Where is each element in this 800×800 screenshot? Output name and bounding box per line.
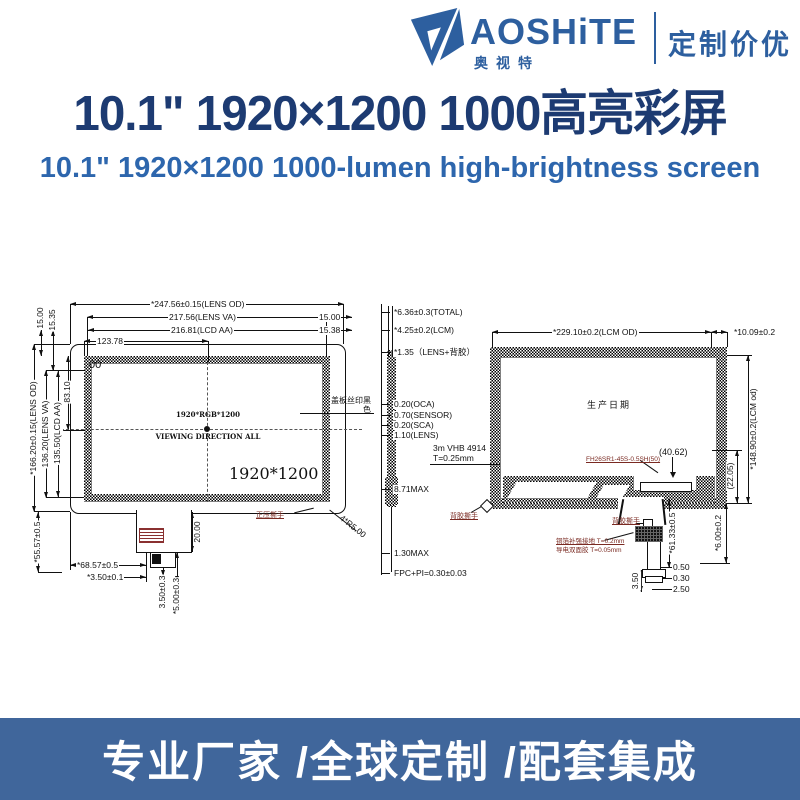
page-title-english: 10.1" 1920×1200 1000-lumen high-brightne… — [0, 152, 800, 185]
tick-line — [381, 435, 390, 436]
dim-fpc-offset: *68.57±0.5 — [76, 561, 119, 571]
fpc-connector-pad — [152, 554, 161, 564]
fpc-sticker — [139, 528, 164, 543]
extension-line — [343, 304, 344, 344]
resolution-label: 1920*1200 — [228, 465, 319, 483]
brand-name: AOSHiTE — [470, 14, 637, 50]
dim-fpc-030: 0.30 — [672, 574, 691, 584]
dimension-line — [711, 332, 727, 333]
dim-lcd-aa-width: 216.81(LCD AA) — [170, 326, 234, 336]
extension-line — [34, 344, 70, 345]
ground-note-line1: 铜箔补强接地 T=0.2mm — [556, 538, 624, 546]
tick-line — [381, 330, 390, 331]
dim-lens-od-width: *247.56±0.15(LENS OD) — [150, 300, 246, 310]
front-tear-tab-note: 正压撕手 — [256, 512, 284, 521]
rear-fpc-gap — [618, 497, 664, 509]
panel-revision-mark: 00 — [88, 359, 102, 372]
tick-line — [381, 415, 390, 416]
rear-fpc-end-tip — [645, 576, 663, 583]
rear-pcb-cutout — [507, 482, 596, 498]
connector-part-number: FH26SR1-45S-0.5SH(50) — [586, 456, 660, 464]
dim-fpc-050: 0.50 — [672, 563, 691, 573]
arrowhead-down — [670, 472, 676, 478]
tick-line — [381, 404, 390, 405]
brand-divider — [654, 12, 656, 64]
dim-total-thickness: *6.36±0.3(TOTAL) — [393, 308, 464, 318]
extension-line — [208, 341, 209, 362]
cover-print-note: 盖板丝印黑色 — [326, 396, 372, 414]
extension-line — [146, 552, 147, 582]
dim-right-margin-1: 15.00 — [318, 313, 341, 323]
dimension-line — [737, 450, 738, 503]
dimension-line — [726, 503, 727, 563]
tick-line — [381, 489, 390, 490]
dim-connector-offset: (40.62) — [658, 447, 689, 457]
brand-tagline: 定制价优 — [668, 23, 792, 63]
rear-tear-tab-note: 背胶撕手 — [612, 518, 640, 527]
board-connector — [640, 482, 692, 492]
extension-line — [326, 317, 327, 356]
page-title-chinese: 10.1" 1920×1200 1000高亮彩屏 — [12, 88, 788, 142]
extension-line — [87, 317, 88, 356]
extension-line — [727, 332, 728, 347]
dim-oca: 0.20(OCA) — [393, 400, 436, 410]
brand-logo-icon — [408, 6, 466, 68]
product-spec-page: AOSHiTE 奥视特 定制价优 10.1" 1920×1200 1000高亮彩… — [0, 0, 800, 800]
side-tear-tab-note: 背胶撕手 — [450, 513, 478, 522]
dim-half-width: 123.78 — [96, 337, 124, 347]
side-view-datum-line — [381, 304, 382, 575]
dim-lens: 1.10(LENS) — [393, 431, 439, 441]
dim-fpc-pi: FPC+PI=0.30±0.03 — [393, 569, 468, 579]
technical-drawing: 00 1920*RGB*1200 VIEWING DIRECTION ALL 1… — [0, 280, 800, 710]
extension-line — [492, 332, 493, 347]
tape-spec-line2: T=0.25mm — [432, 454, 475, 464]
dim-lcm-thickness: *4.25±0.2(LCM) — [393, 326, 455, 336]
side-lens-line — [388, 306, 389, 357]
dim-corner-radius: 4*R5.00 — [336, 513, 368, 541]
extension-line — [70, 304, 71, 344]
extension-line — [62, 430, 84, 431]
tick-line — [381, 312, 390, 313]
dim-sca: 0.20(SCA) — [393, 421, 435, 431]
extension-line — [700, 563, 730, 564]
center-resolution-label: 1920*RGB*1200 — [157, 411, 259, 419]
dim-fpc-edge: *3.50±0.1 — [86, 573, 124, 583]
dim-lcm-od-width: *229.10±0.2(LCM OD) — [552, 328, 639, 338]
dim-top-margin: *10.09±0.2 — [733, 328, 776, 338]
extension-line — [70, 512, 71, 570]
dim-lens-va-width: 217.56(LENS VA) — [168, 313, 237, 323]
production-date-mark: 生产日期 — [586, 400, 632, 410]
side-fpc-line — [391, 507, 392, 572]
copper-stiffener — [635, 526, 663, 542]
extension-line — [727, 503, 752, 504]
extension-line — [46, 497, 84, 498]
dim-fpc-max: 1.30MAX — [393, 549, 430, 559]
tick-line — [381, 425, 390, 426]
dimension-line — [53, 330, 54, 371]
viewing-direction-label: VIEWING DIRECTION ALL — [147, 433, 269, 441]
tick-line — [381, 352, 390, 353]
extension-line — [84, 341, 85, 356]
dim-right-margin-2: 15.38 — [318, 326, 341, 336]
bottom-banner: 专业厂家 /全球定制 /配套集成 — [0, 718, 800, 800]
extension-line — [38, 572, 62, 573]
extension-line — [711, 332, 712, 347]
leader-line — [430, 464, 500, 465]
tick-line — [381, 573, 390, 574]
dim-sensor: 0.70(SENSOR) — [393, 411, 453, 421]
dimension-line — [41, 330, 42, 356]
rear-fpc-narrow-tail — [647, 542, 661, 569]
dim-fpc-250: 2.50 — [672, 585, 691, 595]
dim-lens-adhesive: *1.35（LENS+背胶） — [393, 348, 476, 358]
ground-note-line2: 导电双面胶 T=0.05mm — [556, 547, 622, 555]
dim-stack-max: 8.71MAX — [393, 485, 430, 495]
tick-line — [381, 553, 390, 554]
brand-name-chinese: 奥视特 — [474, 53, 540, 73]
